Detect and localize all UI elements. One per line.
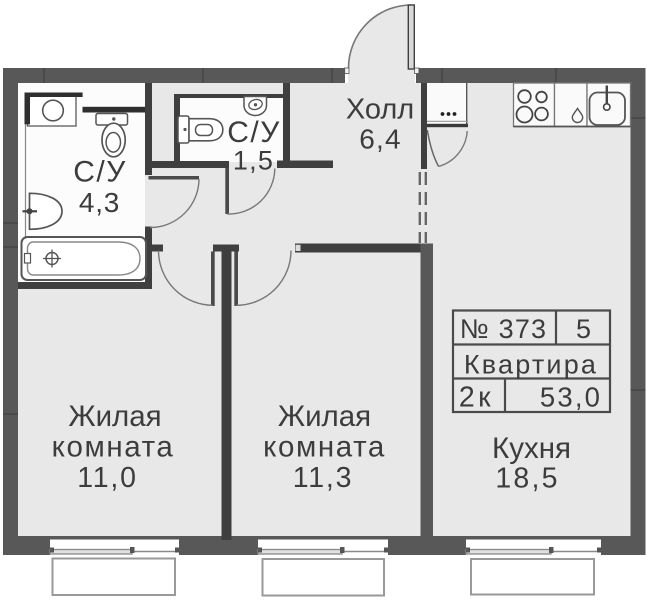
svg-text:2к: 2к [459,382,494,414]
svg-text:18,5: 18,5 [495,463,559,495]
svg-text:11,3: 11,3 [293,462,354,494]
svg-text:С/У: С/У [227,116,281,149]
svg-text:Жилая: Жилая [278,400,371,433]
svg-text:4,3: 4,3 [79,187,120,218]
svg-text:53,0: 53,0 [540,382,602,413]
svg-text:№ 373: № 373 [460,314,548,344]
svg-text:5: 5 [576,314,591,344]
svg-text:комната: комната [263,431,386,464]
svg-text:комната: комната [52,431,175,464]
svg-text:Жилая: Жилая [68,400,161,433]
svg-text:11,0: 11,0 [77,462,138,494]
svg-text:6,4: 6,4 [359,124,402,155]
svg-text:Кухня: Кухня [492,432,571,465]
svg-text:Квартира: Квартира [464,350,598,380]
svg-text:С/У: С/У [73,156,127,189]
svg-text:Холл: Холл [346,94,414,126]
svg-text:1,5: 1,5 [233,146,274,176]
